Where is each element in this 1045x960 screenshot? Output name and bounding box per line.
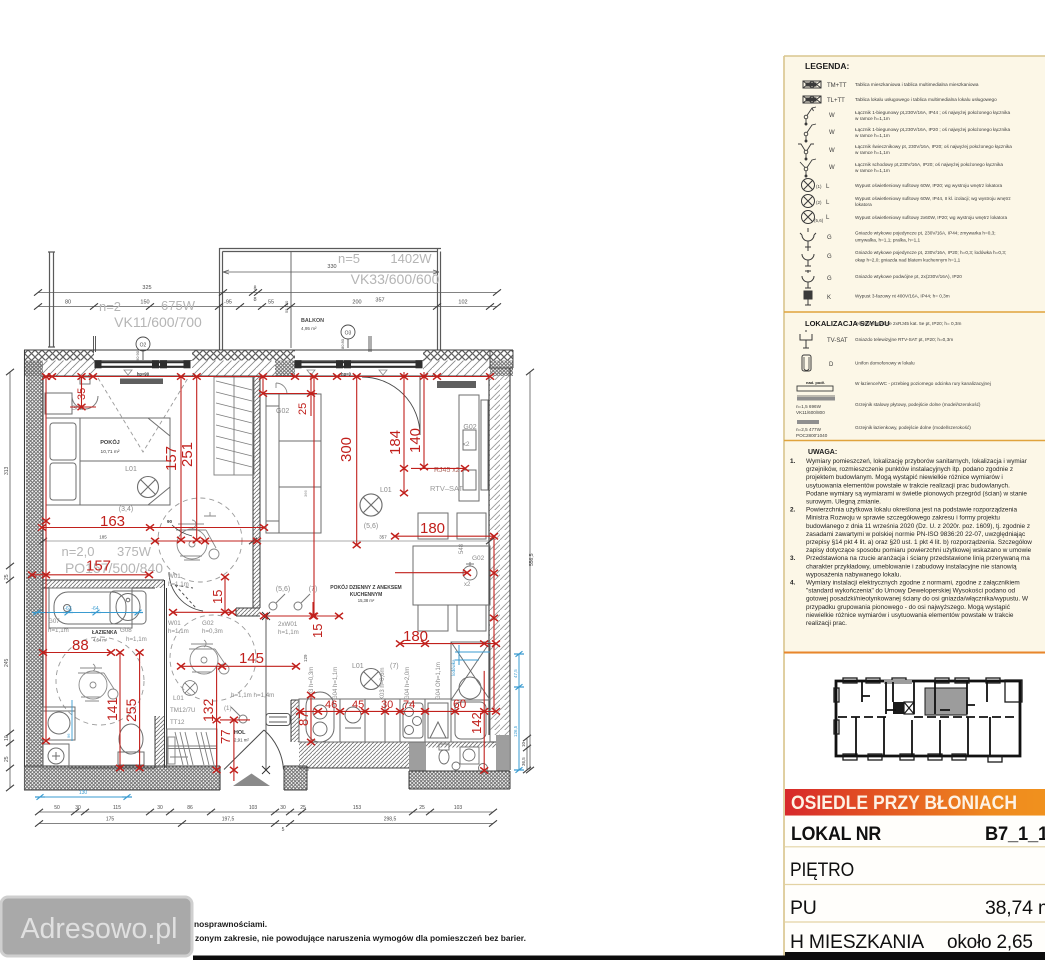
svg-text:Wymiary instalacji elektryczny: Wymiary instalacji elektrycznych zgodne … bbox=[806, 580, 1020, 587]
svg-text:Łącznik 1-biegunowy pt,230V/16: Łącznik 1-biegunowy pt,230V/16A, IP44 ; … bbox=[855, 110, 1010, 115]
svg-text:O2: O2 bbox=[140, 343, 147, 349]
svg-text:141: 141 bbox=[104, 697, 120, 721]
svg-text:251: 251 bbox=[179, 442, 196, 467]
svg-text:313: 313 bbox=[4, 466, 10, 475]
svg-text:K03 h=0,6m: K03 h=0,6m bbox=[380, 667, 386, 700]
svg-text:Wymiary pomieszczeń, lokalizac: Wymiary pomieszczeń, lokalizację przybor… bbox=[806, 458, 1028, 465]
svg-text:L01: L01 bbox=[380, 487, 392, 494]
svg-text:TV-SAT: TV-SAT bbox=[827, 338, 848, 344]
svg-text:153: 153 bbox=[353, 805, 362, 811]
svg-text:O3: O3 bbox=[345, 331, 352, 337]
svg-text:(3,4): (3,4) bbox=[119, 506, 133, 513]
svg-text:w ramce h=1,1m: w ramce h=1,1m bbox=[855, 133, 890, 138]
svg-text:675W: 675W bbox=[161, 298, 196, 313]
svg-text:G02: G02 bbox=[202, 620, 214, 627]
svg-text:15: 15 bbox=[210, 590, 225, 604]
svg-text:3.: 3. bbox=[790, 555, 796, 562]
svg-text:budowlanego z dnia 11 września: budowlanego z dnia 11 września 2020 (Dz.… bbox=[806, 523, 1030, 530]
svg-text:realizacji prac.: realizacji prac. bbox=[806, 620, 847, 627]
svg-text:G: G bbox=[827, 235, 832, 241]
svg-text:15: 15 bbox=[310, 624, 325, 638]
svg-text:-95: -95 bbox=[224, 300, 232, 306]
svg-text:Podane wymiary są wymiarami w: Podane wymiary są wymiarami w świetle pi… bbox=[806, 490, 1027, 497]
svg-text:126,5: 126,5 bbox=[513, 725, 518, 737]
svg-text:38,74 m²: 38,74 m² bbox=[985, 897, 1045, 919]
svg-text:90 90: 90 90 bbox=[135, 350, 140, 361]
svg-text:88: 88 bbox=[72, 637, 89, 654]
svg-text:Adresowo.pl: Adresowo.pl bbox=[21, 913, 178, 945]
svg-text:142: 142 bbox=[469, 712, 484, 734]
svg-text:w ramce h=1,1m: w ramce h=1,1m bbox=[855, 150, 890, 155]
svg-text:hp=0: hp=0 bbox=[341, 372, 352, 377]
svg-text:L01: L01 bbox=[125, 466, 137, 473]
svg-text:L01: L01 bbox=[352, 663, 364, 670]
svg-text:Łącznik 1-biegunowy pt,230V/16: Łącznik 1-biegunowy pt,230V/16A, IP20 ; … bbox=[855, 127, 1010, 132]
svg-text:330: 330 bbox=[327, 264, 336, 270]
svg-text:w ramce h=1,1m: w ramce h=1,1m bbox=[855, 116, 890, 121]
svg-text:80: 80 bbox=[65, 300, 71, 306]
svg-text:lodówka: lodówka bbox=[451, 659, 456, 676]
svg-text:W: W bbox=[829, 130, 835, 136]
svg-text:Łącznik świecznikowy pt, 230V/: Łącznik świecznikowy pt, 230V/16A, IP20;… bbox=[855, 144, 1012, 149]
svg-text:86: 86 bbox=[187, 805, 193, 811]
svg-text:30: 30 bbox=[280, 805, 286, 811]
svg-text:h=1,1m: h=1,1m bbox=[48, 627, 69, 634]
svg-text:375W: 375W bbox=[117, 544, 152, 559]
svg-text:OSIEDLE PRZY BŁONIACH: OSIEDLE PRZY BŁONIACH bbox=[791, 792, 1017, 814]
svg-text:8: 8 bbox=[254, 286, 257, 292]
svg-text:10,71 m²: 10,71 m² bbox=[101, 449, 120, 455]
svg-text:77: 77 bbox=[218, 730, 233, 744]
svg-text:PU: PU bbox=[790, 897, 817, 919]
svg-text:4,64 m²: 4,64 m² bbox=[93, 638, 108, 643]
svg-text:TL+TT: TL+TT bbox=[827, 98, 845, 104]
svg-text:180: 180 bbox=[420, 520, 445, 537]
svg-text:POKÓJ: POKÓJ bbox=[100, 438, 120, 446]
svg-text:25: 25 bbox=[419, 805, 425, 811]
svg-text:n=1,5 696W: n=1,5 696W bbox=[796, 404, 822, 409]
svg-text:surowym. Ulegną zmianie.: surowym. Ulegną zmianie. bbox=[806, 499, 881, 506]
svg-text:157: 157 bbox=[86, 558, 111, 575]
svg-text:D: D bbox=[829, 362, 834, 368]
svg-text:Wypust oświetleniowy sufitowy: Wypust oświetleniowy sufitowy 60W, IP20;… bbox=[855, 183, 1003, 188]
svg-text:55: 55 bbox=[268, 300, 274, 306]
svg-text:197,5: 197,5 bbox=[222, 817, 235, 823]
svg-text:1.: 1. bbox=[790, 458, 796, 465]
svg-text:(5,6): (5,6) bbox=[276, 586, 290, 593]
svg-text:x2: x2 bbox=[464, 582, 471, 588]
svg-text:357: 357 bbox=[379, 535, 387, 540]
svg-text:G04 Oh=1,1m: G04 Oh=1,1m bbox=[436, 662, 442, 700]
svg-text:55 150: 55 150 bbox=[284, 300, 289, 313]
svg-text:Wypust 3-fazowy nt 400V/16A, I: Wypust 3-fazowy nt 400V/16A, IP44; h= 0,… bbox=[855, 294, 950, 299]
svg-text:245: 245 bbox=[4, 658, 10, 667]
svg-text:63: 63 bbox=[305, 766, 310, 771]
svg-text:132: 132 bbox=[200, 698, 216, 722]
svg-text:G04 h=1,1m: G04 h=1,1m bbox=[333, 667, 339, 700]
svg-text:175: 175 bbox=[106, 817, 115, 823]
svg-text:RTV–SAT: RTV–SAT bbox=[430, 484, 463, 493]
svg-text:-63: -63 bbox=[64, 606, 71, 612]
svg-text:10: 10 bbox=[4, 735, 10, 741]
svg-text:10: 10 bbox=[521, 741, 526, 747]
svg-text:W: W bbox=[829, 113, 835, 119]
svg-text:(2): (2) bbox=[816, 200, 822, 205]
svg-text:36,5: 36,5 bbox=[521, 757, 526, 766]
svg-text:140: 140 bbox=[407, 428, 424, 453]
svg-text:n=2,5 477W: n=2,5 477W bbox=[796, 427, 822, 432]
svg-text:charakter przykładowy, umeblow: charakter przykładowy, umeblowanie i zab… bbox=[806, 563, 1017, 570]
svg-text:W: W bbox=[829, 148, 835, 154]
svg-text:180: 180 bbox=[403, 628, 428, 645]
svg-text:umywalka, h=1,1; pralka, h=1,1: umywalka, h=1,1; pralka, h=1,1 bbox=[855, 238, 921, 243]
svg-text:zapisy dotyczące sposobu pomia: zapisy dotyczące sposobu pomiaru powierz… bbox=[806, 547, 1032, 554]
svg-text:35: 35 bbox=[76, 388, 88, 400]
svg-text:lokatora: lokatora bbox=[855, 202, 872, 207]
svg-text:n=5: n=5 bbox=[338, 251, 360, 266]
svg-text:Gniazdo telewizyjne RTV-SAT pt: Gniazdo telewizyjne RTV-SAT pt, IP20; h=… bbox=[855, 337, 953, 342]
svg-text:Gniazdo wtykowe podwójne pt, 2: Gniazdo wtykowe podwójne pt, 2x(230V/16A… bbox=[855, 274, 962, 279]
svg-text:G02: G02 bbox=[463, 424, 476, 431]
svg-text:25: 25 bbox=[297, 403, 309, 415]
svg-text:zonym zakresie, nie powodujące: zonym zakresie, nie powodujące naruszeni… bbox=[195, 933, 526, 943]
svg-text:(1): (1) bbox=[224, 705, 232, 712]
svg-text:Powierzchnia użytkowa lokalu o: Powierzchnia użytkowa lokalu określona j… bbox=[806, 507, 1017, 514]
svg-text:G: G bbox=[827, 276, 832, 282]
svg-text:145: 145 bbox=[239, 650, 264, 667]
svg-text:1402W: 1402W bbox=[390, 251, 432, 266]
svg-text:VK33/600/600: VK33/600/600 bbox=[351, 271, 440, 287]
svg-text:115: 115 bbox=[113, 805, 121, 811]
svg-text:366: 366 bbox=[303, 490, 308, 497]
svg-text:HOL: HOL bbox=[234, 730, 246, 736]
svg-text:150: 150 bbox=[140, 300, 149, 306]
svg-text:8: 8 bbox=[253, 297, 256, 303]
svg-text:298,5: 298,5 bbox=[384, 817, 397, 823]
svg-text:30: 30 bbox=[157, 805, 163, 811]
svg-text:80 80: 80 80 bbox=[340, 338, 345, 349]
svg-text:-64: -64 bbox=[91, 606, 98, 612]
svg-text:30: 30 bbox=[381, 699, 393, 711]
svg-text:(5,6): (5,6) bbox=[364, 523, 378, 530]
svg-text:25: 25 bbox=[4, 756, 10, 762]
svg-text:UWAGA:: UWAGA: bbox=[808, 449, 837, 456]
svg-text:Ministra Rozwoju w sprawie szc: Ministra Rozwoju w sprawie szczegółowego… bbox=[806, 515, 1000, 522]
svg-text:w ramce h=1,1m: w ramce h=1,1m bbox=[855, 168, 890, 173]
svg-text:Wypust oświetleniowy sufitowy: Wypust oświetleniowy sufitowy 60W, IP44,… bbox=[855, 196, 1011, 201]
svg-text:nosprawnościami.: nosprawnościami. bbox=[194, 919, 267, 929]
svg-text:K: K bbox=[827, 295, 831, 301]
svg-text:Unifon domofonowy w lokalu: Unifon domofonowy w lokalu bbox=[855, 361, 915, 366]
svg-text:Tablica mieszkaniowa i tablic: Tablica mieszkaniowa i tablica multimedi… bbox=[855, 82, 979, 87]
svg-text:2,91 m²: 2,91 m² bbox=[234, 738, 249, 743]
svg-text:G07: G07 bbox=[48, 618, 60, 625]
svg-text:103: 103 bbox=[454, 805, 463, 811]
svg-text:46: 46 bbox=[325, 699, 337, 711]
svg-text:W łazience/WC - przebieg pozio: W łazience/WC - przebieg poziomego odcin… bbox=[855, 381, 991, 386]
svg-text:h=1,1m: h=1,1m bbox=[126, 636, 147, 643]
svg-text:x2: x2 bbox=[463, 441, 470, 448]
svg-text:60: 60 bbox=[453, 697, 467, 711]
svg-text:H MIESZKANIA: H MIESZKANIA bbox=[790, 932, 925, 953]
svg-text:VK11/600/800: VK11/600/800 bbox=[796, 410, 825, 415]
svg-text:niewielkie różnice wymiarów i: niewielkie różnice wymiarów i usytuowani… bbox=[806, 612, 1014, 619]
svg-text:n=2: n=2 bbox=[99, 299, 121, 314]
svg-text:325: 325 bbox=[142, 285, 151, 291]
svg-text:255: 255 bbox=[123, 698, 139, 722]
svg-text:grzejników, rozmieszczenie pun: grzejników, rozmieszczenie punktów insta… bbox=[806, 466, 1013, 473]
svg-text:LOKAL NR: LOKAL NR bbox=[791, 823, 881, 845]
svg-text:357: 357 bbox=[375, 298, 384, 304]
svg-text:h=0,3m: h=0,3m bbox=[202, 628, 223, 635]
svg-text:Grzejnik łazienkowy, podejście: Grzejnik łazienkowy, podejście dolne (mo… bbox=[855, 425, 971, 430]
svg-text:2.: 2. bbox=[790, 507, 796, 514]
svg-text:(5,6): (5,6) bbox=[814, 218, 824, 223]
svg-text:4,95 m²: 4,95 m² bbox=[301, 326, 317, 331]
svg-text:45: 45 bbox=[352, 699, 364, 711]
svg-text:87: 87 bbox=[296, 712, 311, 726]
svg-text:G02: G02 bbox=[276, 408, 289, 415]
svg-text:"standard wykończenia" do Umow: "standard wykończenia" do Umowy Dewelope… bbox=[806, 588, 1016, 595]
svg-text:TM+TT: TM+TT bbox=[827, 83, 847, 89]
svg-text:102: 102 bbox=[458, 300, 467, 306]
svg-text:usytuowania elementów powstałe: usytuowania elementów powstałe w trakcie… bbox=[806, 482, 1010, 489]
svg-text:przypadku grupowania pionowego: przypadku grupowania pionowego - do osi … bbox=[806, 604, 1011, 611]
svg-text:h=1,1m: h=1,1m bbox=[278, 629, 299, 636]
svg-text:103: 103 bbox=[249, 805, 258, 811]
svg-text:Gniazdo wtykowe pojedyncze pt,: Gniazdo wtykowe pojedyncze pt, 230V/16A,… bbox=[855, 250, 1006, 255]
svg-text:G02: G02 bbox=[472, 555, 485, 562]
svg-text:projektem budowlanym. Mogą wys: projektem budowlanym. Mogą wystąpić niew… bbox=[806, 474, 1003, 481]
svg-text:96: 96 bbox=[66, 733, 71, 738]
svg-text:25: 25 bbox=[4, 574, 10, 580]
svg-text:129: 129 bbox=[303, 654, 308, 662]
svg-text:Grzejnik stalowy płytowy, pode: Grzejnik stalowy płytowy, podejście doln… bbox=[855, 402, 981, 407]
svg-text:Przedstawiona na rzucie aranża: Przedstawiona na rzucie aranżacja i ścia… bbox=[806, 555, 1030, 562]
svg-text:okap h=2,0; gniazda nad blatem: okap h=2,0; gniazda nad blatem kuchennym… bbox=[855, 258, 961, 263]
svg-text:W: W bbox=[829, 165, 835, 171]
svg-text:TT12: TT12 bbox=[170, 719, 185, 726]
svg-text:h=1,1m: h=1,1m bbox=[168, 628, 189, 635]
svg-text:(7): (7) bbox=[309, 586, 318, 593]
svg-text:25: 25 bbox=[300, 805, 306, 811]
svg-text:Wypust oświetleniowy sufitowy: Wypust oświetleniowy sufitowy 2x60W, IP2… bbox=[855, 215, 1007, 220]
svg-text:B7_1_11: B7_1_11 bbox=[985, 823, 1045, 845]
svg-text:POC2800'1040: POC2800'1040 bbox=[796, 433, 828, 438]
svg-text:L01: L01 bbox=[173, 695, 184, 702]
svg-text:przepisy §14 pkt 4 lit. a) ora: przepisy §14 pkt 4 lit. a) oraz §20 ust.… bbox=[806, 539, 1032, 546]
svg-text:4.: 4. bbox=[790, 580, 796, 587]
svg-text:2xW01: 2xW01 bbox=[278, 621, 298, 628]
svg-text:teleinformatyczne 2xRJ45 kat.: teleinformatyczne 2xRJ45 kat. 5e pt, IP2… bbox=[855, 321, 962, 326]
svg-text:W01: W01 bbox=[168, 573, 181, 580]
svg-text:5: 5 bbox=[282, 827, 285, 833]
svg-text:(1): (1) bbox=[816, 184, 822, 189]
svg-text:nad. podł.: nad. podł. bbox=[806, 380, 825, 385]
svg-text:G: G bbox=[827, 254, 832, 260]
svg-text:hp=90: hp=90 bbox=[137, 372, 150, 377]
svg-text:ŁAZIENKA: ŁAZIENKA bbox=[92, 630, 118, 636]
svg-text:LEGENDA:: LEGENDA: bbox=[805, 61, 850, 71]
svg-text:185: 185 bbox=[99, 535, 107, 540]
svg-text:gotowej posadzki/nieotynkowane: gotowej posadzki/nieotynkowanej ściany d… bbox=[806, 596, 1029, 603]
svg-text:Tablica lokalu usługowego i ta: Tablica lokalu usługowego i tablica mult… bbox=[855, 97, 997, 102]
svg-text:wyposażenia nabywanego lokalu.: wyposażenia nabywanego lokalu. bbox=[805, 571, 901, 578]
svg-text:PIĘTRO: PIĘTRO bbox=[790, 859, 854, 881]
svg-text:TM12/7U: TM12/7U bbox=[170, 707, 195, 714]
svg-text:Łącznik schodowy pt,230V/16A,: Łącznik schodowy pt,230V/16A, IP20; oś n… bbox=[855, 162, 1003, 167]
svg-text:BALKON: BALKON bbox=[301, 318, 324, 324]
svg-text:15,38 m²: 15,38 m² bbox=[358, 598, 375, 603]
svg-text:50: 50 bbox=[54, 805, 60, 811]
svg-text:47,5: 47,5 bbox=[513, 669, 518, 678]
svg-text:300: 300 bbox=[338, 437, 355, 462]
svg-text:zasadami zawartymi w polskiej: zasadami zawartymi w polskiej normie PN-… bbox=[806, 531, 1026, 538]
svg-text:157: 157 bbox=[163, 446, 180, 471]
svg-text:30: 30 bbox=[75, 805, 81, 811]
svg-text:W01: W01 bbox=[168, 620, 181, 627]
svg-text:G08: G08 bbox=[120, 627, 132, 634]
svg-text:h=1,1m: h=1,1m bbox=[168, 581, 189, 588]
svg-text:556,5: 556,5 bbox=[529, 553, 535, 566]
svg-text:74: 74 bbox=[403, 699, 415, 711]
svg-text:130: 130 bbox=[79, 790, 88, 796]
svg-text:163: 163 bbox=[100, 513, 125, 530]
svg-text:548: 548 bbox=[459, 543, 465, 554]
svg-text:184: 184 bbox=[387, 430, 404, 455]
svg-text:około 2,65: około 2,65 bbox=[947, 932, 1033, 953]
svg-text:200: 200 bbox=[352, 300, 361, 306]
svg-text:G04 h=2,0m: G04 h=2,0m bbox=[405, 667, 411, 700]
svg-text:h=1,1m h=1,4m: h=1,1m h=1,4m bbox=[231, 692, 274, 699]
svg-text:Gniazdo wtykowe pojedyncze pt,: Gniazdo wtykowe pojedyncze pt, 230V/16A,… bbox=[855, 231, 996, 236]
svg-text:VK11/600/700: VK11/600/700 bbox=[114, 314, 202, 330]
svg-text:90: 90 bbox=[167, 519, 173, 524]
svg-text:(7): (7) bbox=[390, 663, 399, 670]
svg-text:POKÓJ DZIENNY Z ANEKSEM: POKÓJ DZIENNY Z ANEKSEM bbox=[330, 583, 401, 591]
